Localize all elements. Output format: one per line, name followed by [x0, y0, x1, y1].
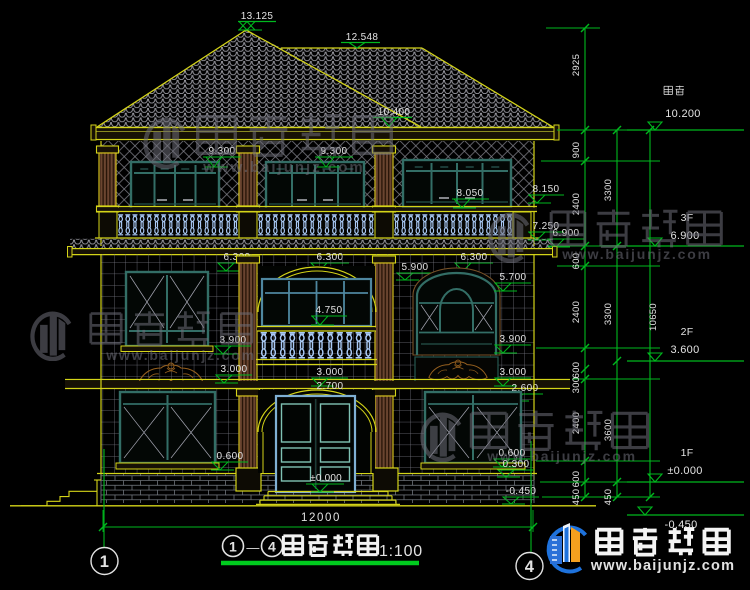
svg-text:12000: 12000 — [301, 512, 341, 524]
svg-text:www.baijunjz.com: www.baijunjz.com — [561, 246, 712, 262]
svg-text:1F: 1F — [681, 447, 694, 459]
svg-text:4.750: 4.750 — [315, 305, 342, 316]
svg-text:2925: 2925 — [571, 54, 582, 76]
svg-text:3.000: 3.000 — [220, 364, 247, 375]
svg-text:1: 1 — [229, 539, 237, 555]
svg-text:3.000: 3.000 — [316, 367, 343, 378]
svg-text:2400: 2400 — [571, 301, 582, 323]
svg-text:3.900: 3.900 — [499, 334, 526, 345]
svg-text:4: 4 — [268, 539, 276, 555]
svg-text:12.548: 12.548 — [346, 32, 379, 43]
svg-text:±0.000: ±0.000 — [667, 465, 702, 477]
svg-text:1: 1 — [100, 553, 109, 571]
svg-text:600: 600 — [571, 471, 582, 488]
svg-text:10.200: 10.200 — [665, 108, 700, 120]
svg-text:300: 300 — [571, 377, 582, 394]
svg-text:450: 450 — [603, 489, 614, 506]
svg-text:www.baijunjz.com: www.baijunjz.com — [105, 347, 256, 363]
svg-text:5.700: 5.700 — [499, 272, 526, 283]
svg-text:900: 900 — [571, 142, 582, 159]
svg-text:10650: 10650 — [648, 303, 659, 331]
svg-text:0.600: 0.600 — [216, 451, 243, 462]
svg-text:—: — — [246, 540, 259, 555]
svg-text:8.150: 8.150 — [532, 184, 559, 195]
svg-text:13.125: 13.125 — [241, 11, 274, 22]
svg-text:450: 450 — [571, 489, 582, 506]
svg-text:3300: 3300 — [603, 179, 614, 201]
svg-text:9.300: 9.300 — [208, 146, 235, 157]
svg-text:www.baijunjz.com: www.baijunjz.com — [590, 558, 735, 574]
svg-text:1:100: 1:100 — [379, 543, 423, 560]
svg-text:www.baijunjz.com: www.baijunjz.com — [202, 159, 364, 176]
svg-text:3.600: 3.600 — [670, 344, 699, 356]
svg-text:3300: 3300 — [603, 303, 614, 325]
svg-text:www.baijunjz.com: www.baijunjz.com — [486, 448, 637, 464]
svg-text:2F: 2F — [681, 326, 694, 338]
svg-text:3.000: 3.000 — [499, 367, 526, 378]
svg-text:±0.000: ±0.000 — [310, 473, 342, 484]
svg-text:600: 600 — [571, 362, 582, 379]
svg-text:4: 4 — [525, 558, 535, 576]
svg-text:-0.450: -0.450 — [506, 486, 537, 497]
svg-text:8.050: 8.050 — [456, 188, 483, 199]
